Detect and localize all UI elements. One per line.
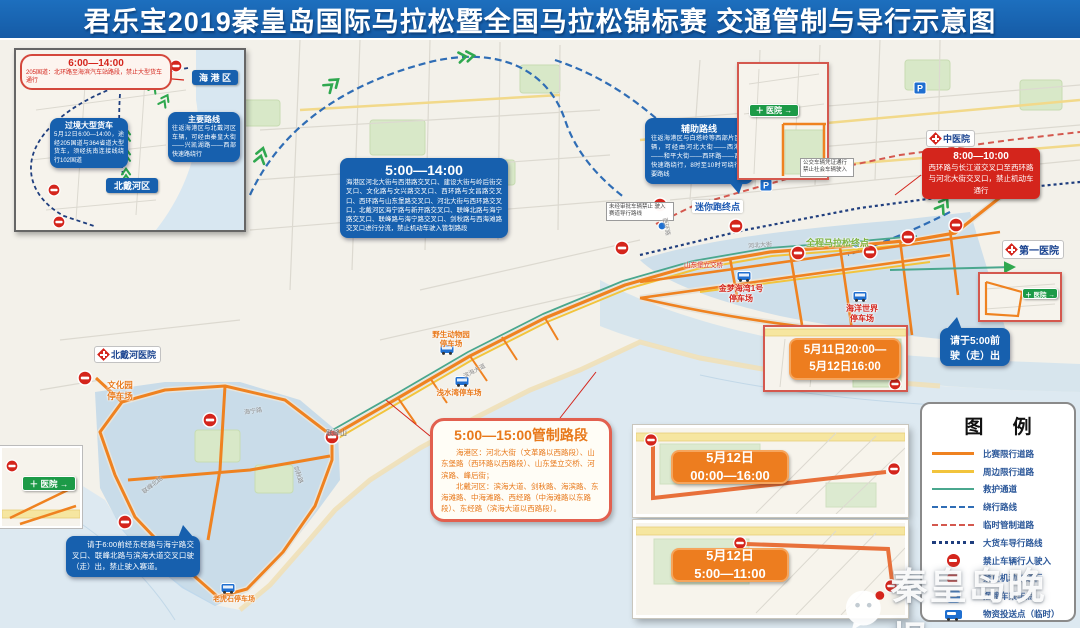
panel-b-date-box: 5月12日 5:00—11:00 [671, 548, 789, 582]
peripheral-road-swatch [932, 470, 974, 473]
control-segments-box: 5:00—15:00管制路段 海港区：河北大街（文革路以西路段）、山东堡路（西环… [430, 418, 612, 522]
panel-a-date-box: 5月12日 00:00—16:00 [671, 450, 789, 484]
title-bar: 君乐宝2019秦皇岛国际马拉松暨全国马拉松锦标赛 交通管制与导行示意图 [0, 0, 1080, 40]
full-marathon-finish-label: 全程马拉松终点 [806, 236, 869, 249]
panel-b-line2: 5:00—11:00 [673, 565, 787, 583]
page-title: 君乐宝2019秦皇岛国际马拉松暨全国马拉松锦标赛 交通管制与导行示意图 [84, 0, 997, 39]
transit-truck-title: 过境大型货车 [54, 120, 124, 131]
zhongyiyuan-label: 中医院 [926, 130, 975, 147]
panel-closure-a: 5月12日 00:00—16:00 [633, 425, 908, 517]
transit-truck-body: 5月12日6:00—14:00，途经205国道与364省道大型货车，须经抚南连接… [54, 131, 124, 166]
panel-b-line1: 5月12日 [673, 547, 787, 565]
control-segments-title: 5:00—15:00管制路段 [441, 425, 601, 445]
parking-label-laohushi: 老虎石停车场 [198, 596, 270, 605]
inset-hospital-east: ＋ 医院 → [978, 272, 1062, 322]
diyi-hospital-text: 第一医院 [1019, 242, 1059, 257]
watermark: 秦皇岛晚报 [842, 556, 1080, 628]
legend-label: 周边限行道路 [983, 466, 1034, 478]
hospital-icon [99, 350, 108, 359]
beidaihe-hospital-label: 北戴河医院 [94, 346, 161, 363]
zhongyiyuan-text: 中医院 [943, 132, 970, 145]
hospital-direction-sign: ＋ 医院 → [1022, 288, 1058, 299]
truck-ban-text: 205国道：北环路至海滨汽车站路段，禁止大型货车通行 [26, 69, 166, 86]
exit-before-5-text: 请于5:00前 驶（走）出 [942, 332, 1008, 362]
parking-icon [760, 179, 772, 191]
note-box-2: 公交车辆凭证通行 禁止社会车辆驶入 [800, 158, 854, 177]
beidaihe-hospital-text: 北戴河医院 [111, 348, 156, 361]
interchange-label: 山东堡立交桥 [684, 262, 723, 270]
legend-label: 大货车导行路线 [983, 537, 1043, 549]
inset-hospital-west: ＋ 医院 → [0, 446, 82, 528]
panel-a-line2: 00:00—16:00 [673, 467, 787, 485]
legend-label: 救护通道 [983, 483, 1017, 495]
diyi-hospital-label: 第一医院 [1002, 240, 1064, 259]
district-label-haigang: 海 港 区 [192, 70, 238, 85]
callout-8-10-ban: 8:00—10:00 西环路与长江道交叉口至西环路与河北大街交叉口，禁止机动车通… [922, 148, 1040, 199]
road-label-hebei-st: 河北大街 [748, 239, 773, 250]
closure-date-line1: 5月11日20:00— [791, 342, 899, 359]
map-canvas: P [0, 40, 1080, 628]
traffic-control-map: 君乐宝2019秦皇岛国际马拉松暨全国马拉松锦标赛 交通管制与导行示意图 P [0, 0, 1080, 628]
parking-label-ocean-world: 海洋世界 停车场 [834, 304, 890, 324]
parking-label-jinmeng: 金梦海湾1号 停车场 [706, 284, 776, 304]
parking-icon [914, 82, 926, 94]
callout-aux-body: 往返海港区与白塔岭等西部片区车辆，可经由河北大街——西港路——和平大街——西环路… [651, 135, 747, 180]
control-segments-p1: 海港区：河北大街（文革路以西路段）、山东堡路（西环路以西路段）、山东堡立交桥、河… [441, 447, 601, 481]
mini-finish-label: 迷你跑终点 [692, 200, 743, 213]
parking-label-wildlife: 野生动物园 停车场 [420, 330, 482, 349]
main-route-box: 主要路线 往返海港区与北戴河区车辆，可经由秦皇大街——兴凯湖路——西部快速路绕行 [168, 112, 240, 162]
hospital-direction-sign: ＋ 医院 → [749, 104, 799, 117]
hospital-icon [931, 134, 940, 143]
main-route-title: 主要路线 [172, 114, 236, 125]
legend-label: 绕行路线 [983, 501, 1017, 513]
legend-row: 绕行路线 [922, 498, 1074, 516]
callout-5-14-body: 海港区河北大街与西港路交叉口、建设大街与岭后街交叉口、文化路与文兴路交叉口、西环… [346, 178, 502, 234]
hospital-icon [1007, 245, 1016, 254]
callout-aux-title: 辅助路线 [651, 122, 747, 135]
truck-route-swatch [932, 541, 974, 544]
truck-ban-time: 6:00—14:00 [26, 58, 166, 69]
truck-ban-notice: 6:00—14:00 205国道：北环路至海滨汽车站路段，禁止大型货车通行 [20, 54, 172, 90]
callout-exit-before-6: 请于6:00前经东经路与海宁路交叉口、联峰北路与滨海大道交叉口驶（走）出，禁止驶… [66, 536, 200, 577]
transit-truck-box: 过境大型货车 5月12日6:00—14:00，途经205国道与364省道大型货车… [50, 118, 128, 168]
panel-a-line1: 5月12日 [673, 449, 787, 467]
legend-row: 比赛限行道路 [922, 445, 1074, 463]
wechat-bubble-icon [842, 587, 887, 628]
parking-label-wenhuayuan: 文化园 停车场 [92, 380, 148, 401]
legend-title: 图 例 [922, 412, 1074, 439]
legend-label: 临时管制道路 [983, 519, 1034, 531]
temp-control-swatch [932, 524, 974, 526]
parking-label-qianshuiwan: 浅水湾停车场 [424, 388, 494, 397]
detour-route-swatch [932, 506, 974, 508]
inset-closure-dates: 5月11日20:00— 5月12日16:00 [763, 325, 908, 392]
watermark-text: 秦皇岛晚报 [891, 556, 1080, 628]
main-route-body: 往返海港区与北戴河区车辆，可经由秦皇大街——兴凯湖路——西部快速路绕行 [172, 125, 236, 160]
rescue-lane-swatch [932, 488, 974, 490]
callout-8-10-body: 西环路与长江道交叉口至西环路与河北大街交叉口，禁止机动车通行 [927, 162, 1035, 196]
exit-before-6-text: 请于6:00前经东经路与海宁路交叉口、联峰北路与滨海大道交叉口驶（走）出，禁止驶… [72, 540, 194, 573]
legend-row: 周边限行道路 [922, 463, 1074, 481]
callout-exit-before-5: 请于5:00前 驶（走）出 [940, 328, 1010, 366]
inset-northwest-overview: 6:00—14:00 205国道：北环路至海滨汽车站路段，禁止大型货车通行 海 … [14, 48, 246, 232]
callout-5-14-title: 5:00—14:00 [346, 162, 502, 178]
control-segments-p2: 北戴河区：滨海大道、剑秋路、海滨路、东海滩路、中海滩路、西经路（中海滩路以东路段… [441, 481, 601, 515]
closure-date-box: 5月11日20:00— 5月12日16:00 [789, 338, 901, 380]
closure-date-line2: 5月12日16:00 [791, 359, 899, 376]
legend-row: 临时管制道路 [922, 516, 1074, 534]
legend-row: 救护通道 [922, 481, 1074, 499]
lianfengshan-label: 联峰山 [326, 428, 347, 438]
legend-row: 大货车导行路线 [922, 534, 1074, 552]
district-label-beidaihe: 北戴河区 [106, 178, 158, 193]
hospital-direction-sign: ＋ 医院 → [22, 476, 76, 491]
race-road-swatch [932, 452, 974, 455]
callout-control-5-14: 5:00—14:00 海港区河北大街与西港路交叉口、建设大街与岭后街交叉口、文化… [340, 158, 508, 238]
legend-label: 比赛限行道路 [983, 448, 1034, 460]
callout-8-10-title: 8:00—10:00 [927, 151, 1035, 162]
